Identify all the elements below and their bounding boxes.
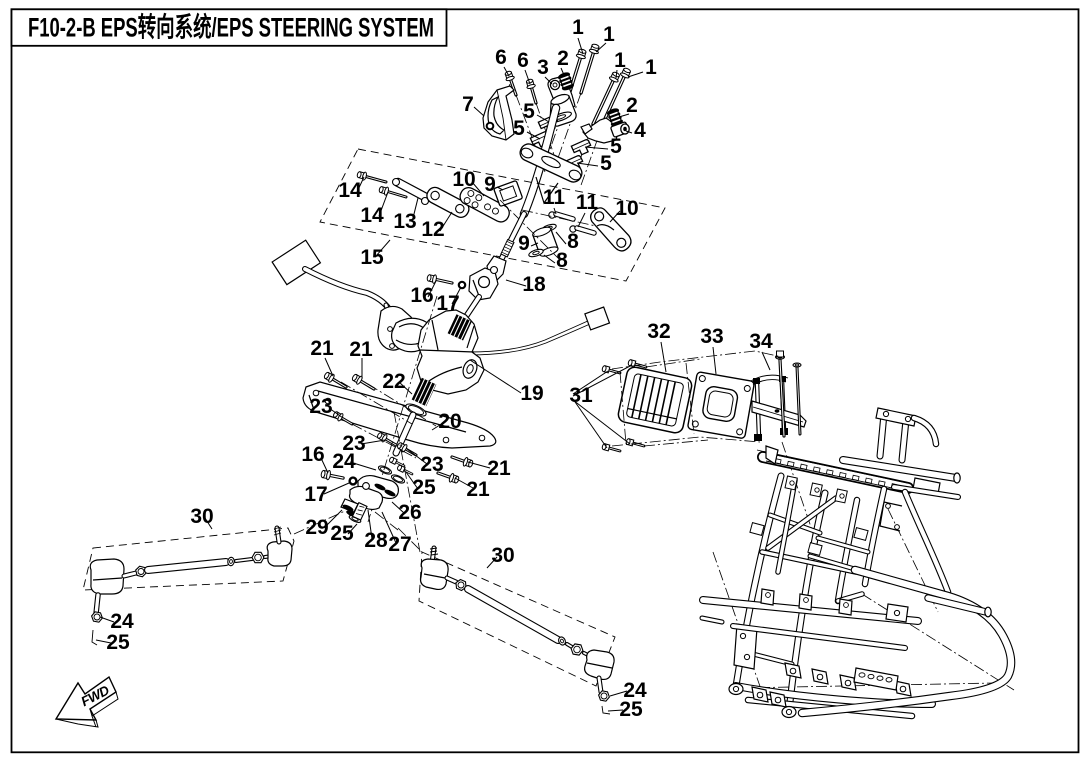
- svg-text:23: 23: [309, 395, 332, 418]
- svg-text:25: 25: [330, 522, 354, 545]
- svg-text:2: 2: [557, 47, 569, 70]
- svg-text:14: 14: [360, 204, 384, 227]
- svg-text:28: 28: [364, 529, 388, 552]
- svg-text:23: 23: [420, 453, 443, 476]
- svg-text:1: 1: [603, 23, 615, 46]
- svg-text:32: 32: [647, 320, 670, 343]
- svg-text:19: 19: [520, 382, 543, 405]
- svg-text:6: 6: [495, 46, 507, 69]
- svg-text:1: 1: [614, 49, 626, 72]
- svg-text:16: 16: [410, 284, 433, 307]
- svg-text:31: 31: [569, 384, 593, 407]
- svg-text:4: 4: [634, 119, 646, 142]
- svg-text:13: 13: [393, 210, 416, 233]
- svg-text:29: 29: [305, 516, 328, 539]
- svg-text:34: 34: [749, 330, 773, 353]
- svg-text:21: 21: [487, 457, 511, 480]
- svg-text:17: 17: [304, 483, 327, 506]
- svg-text:9: 9: [484, 173, 496, 196]
- svg-text:10: 10: [615, 197, 638, 220]
- svg-text:21: 21: [466, 478, 490, 501]
- svg-text:25: 25: [412, 476, 436, 499]
- svg-text:25: 25: [619, 698, 643, 721]
- svg-text:21: 21: [349, 338, 373, 361]
- svg-text:5: 5: [513, 117, 525, 140]
- svg-text:16: 16: [301, 443, 324, 466]
- svg-text:30: 30: [491, 544, 514, 567]
- svg-text:2: 2: [626, 94, 638, 117]
- svg-text:1: 1: [572, 16, 584, 39]
- svg-text:27: 27: [388, 533, 411, 556]
- svg-text:11: 11: [543, 186, 566, 209]
- svg-text:3: 3: [537, 56, 549, 79]
- svg-text:5: 5: [523, 100, 535, 123]
- svg-text:12: 12: [421, 218, 444, 241]
- svg-text:20: 20: [438, 410, 461, 433]
- svg-text:1: 1: [645, 56, 657, 79]
- svg-text:10: 10: [452, 168, 475, 191]
- svg-text:21: 21: [310, 337, 334, 360]
- svg-text:6: 6: [517, 49, 529, 72]
- svg-text:17: 17: [436, 292, 459, 315]
- svg-text:24: 24: [110, 610, 134, 633]
- svg-text:22: 22: [382, 370, 405, 393]
- svg-text:5: 5: [600, 152, 612, 175]
- svg-text:14: 14: [338, 179, 362, 202]
- svg-text:26: 26: [398, 501, 421, 524]
- svg-text:8: 8: [556, 249, 568, 272]
- svg-text:8: 8: [567, 230, 579, 253]
- svg-text:18: 18: [522, 273, 546, 296]
- svg-text:F10-2-B EPS转向系统/EPS STEERING S: F10-2-B EPS转向系统/EPS STEERING SYSTEM: [28, 12, 434, 43]
- svg-text:15: 15: [360, 246, 384, 269]
- svg-text:25: 25: [106, 631, 130, 654]
- svg-text:5: 5: [610, 135, 622, 158]
- svg-text:33: 33: [700, 325, 723, 348]
- svg-text:11: 11: [576, 191, 599, 214]
- svg-text:9: 9: [518, 232, 530, 255]
- svg-text:7: 7: [462, 93, 474, 116]
- svg-text:30: 30: [190, 505, 213, 528]
- svg-text:24: 24: [332, 450, 356, 473]
